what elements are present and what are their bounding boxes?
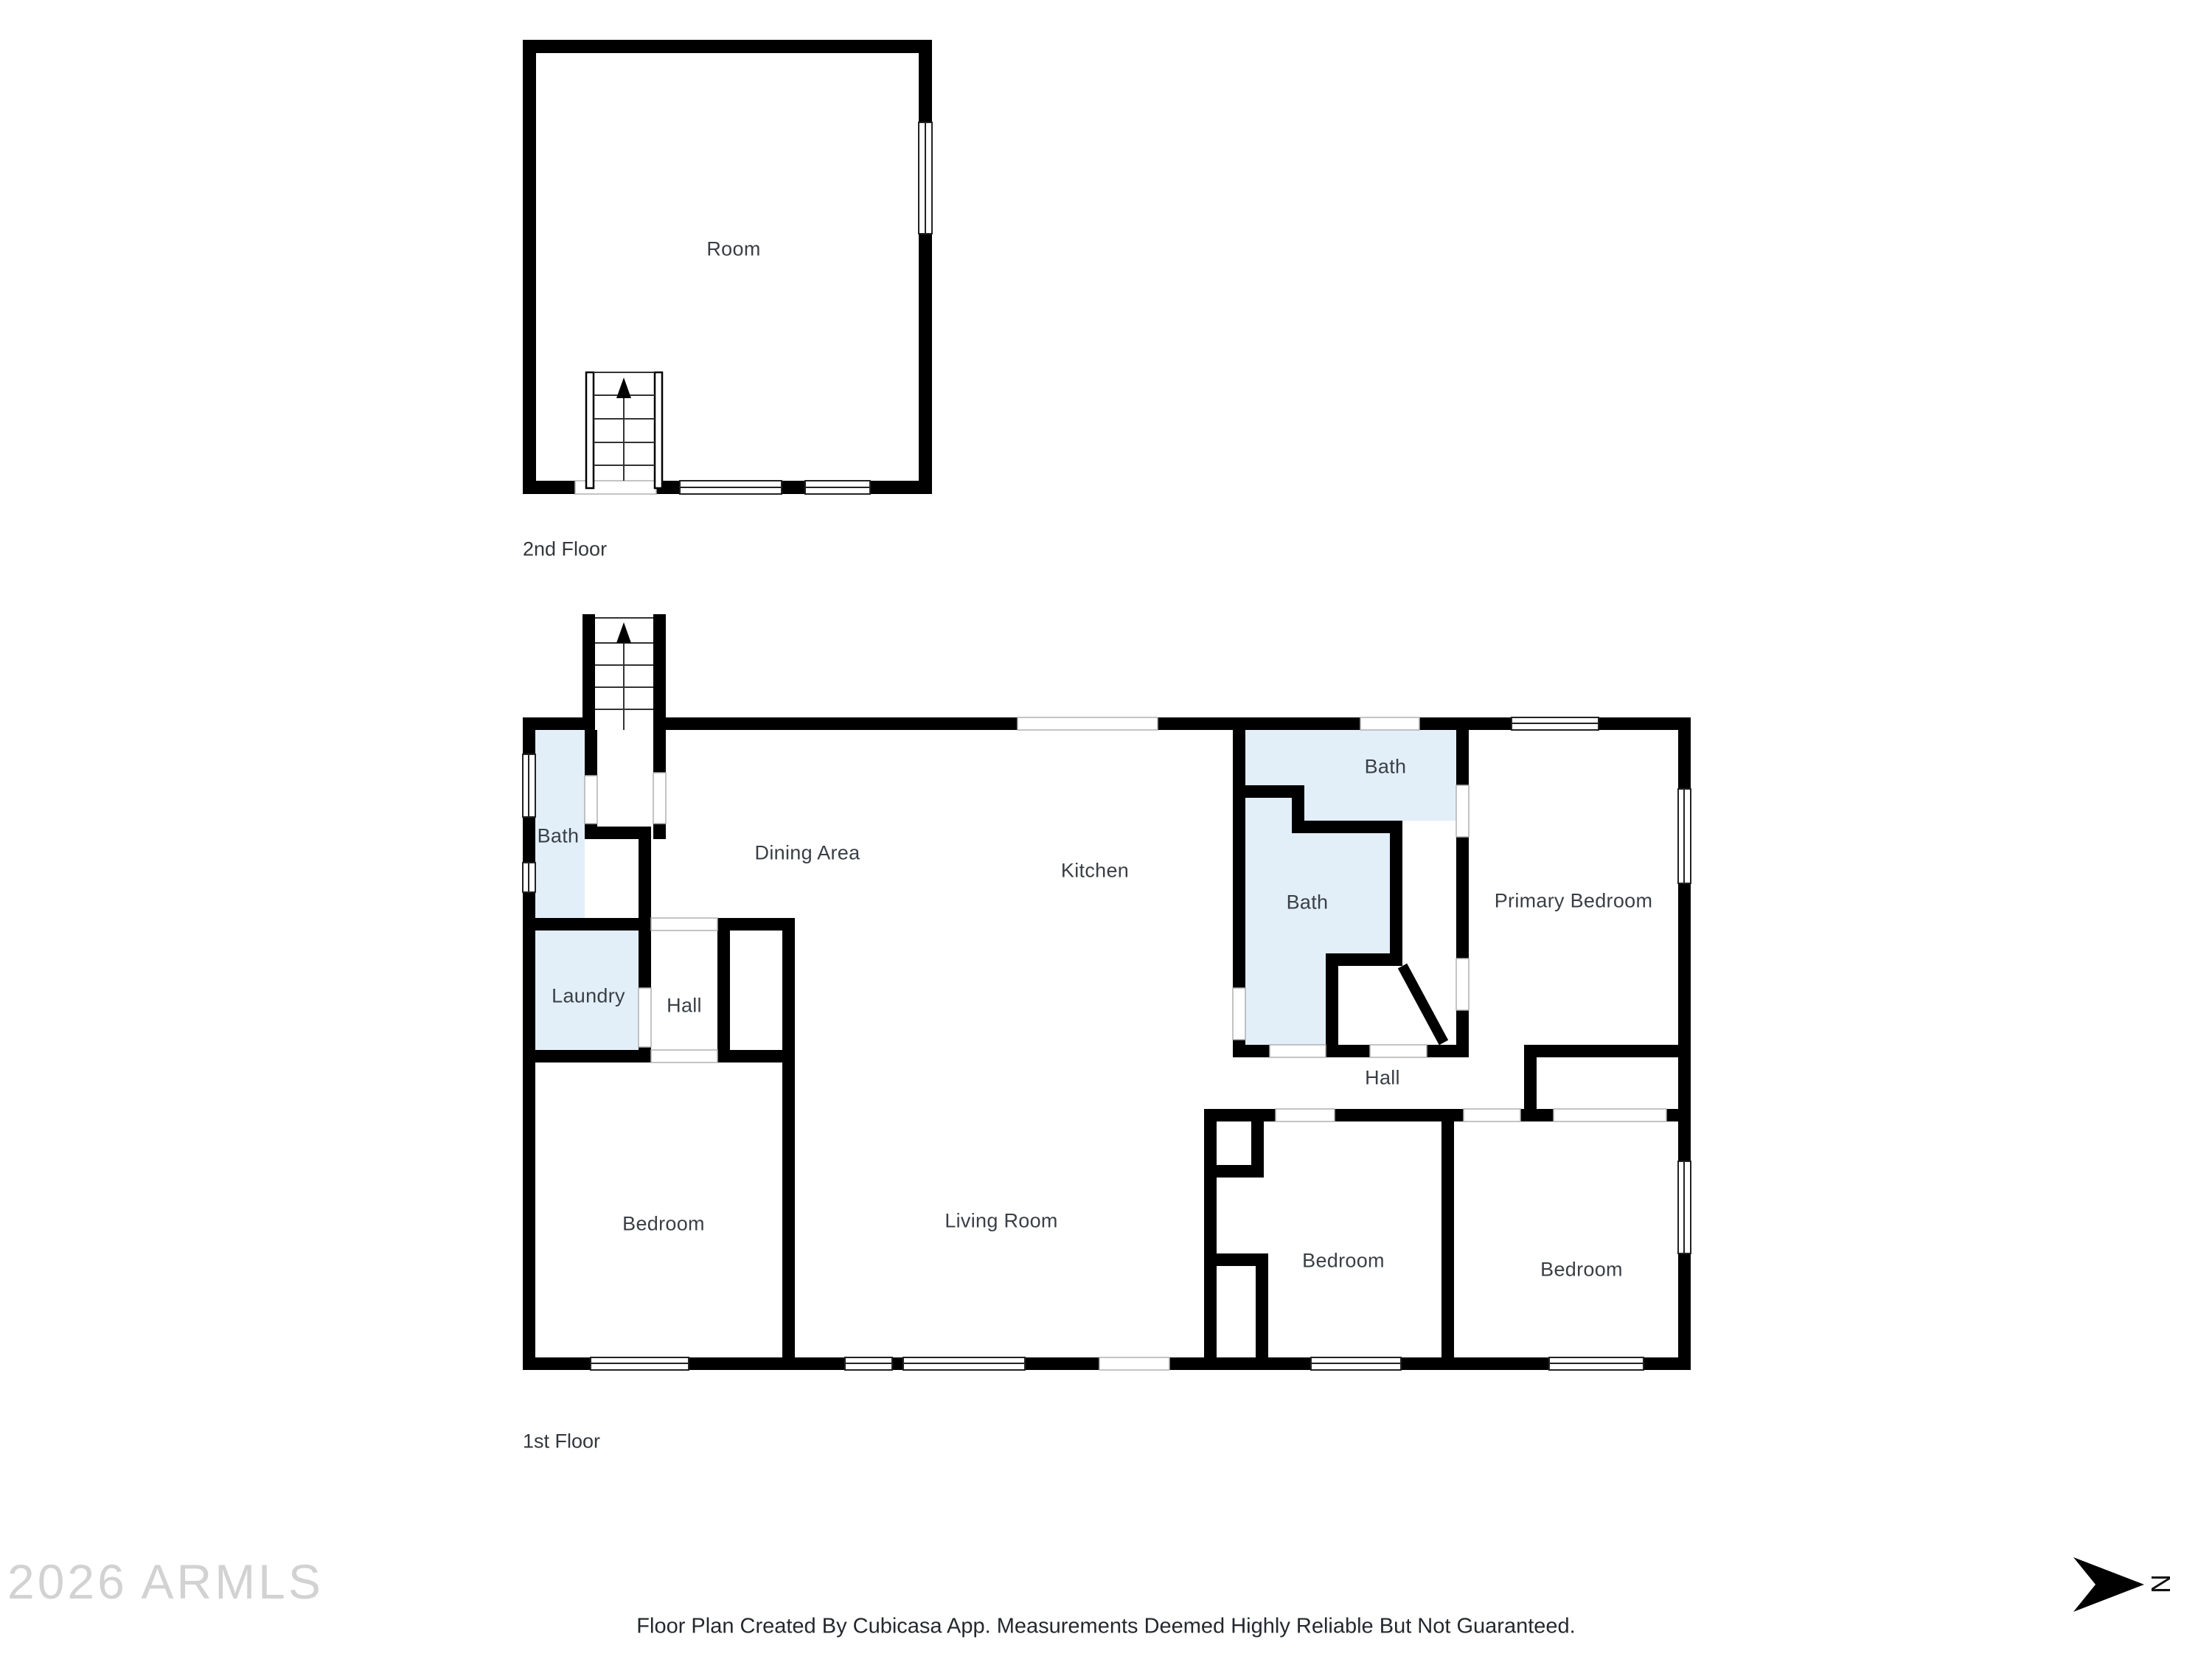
north-arrow-icon — [2073, 1557, 2144, 1612]
window-icon — [1311, 1357, 1401, 1370]
room-label-kitchen: Kitchen — [1061, 860, 1129, 883]
window-icon — [903, 1357, 1025, 1370]
window-icons-1f — [523, 717, 1691, 1370]
window-icon — [919, 122, 932, 234]
window-icon — [523, 863, 535, 892]
floor-plan-canvas — [0, 0, 2212, 1659]
door-opening — [1464, 1109, 1520, 1121]
floor-plan-page: Room 2nd Floor Bath Dining Area Kitchen … — [0, 0, 2212, 1659]
window-icon — [1678, 789, 1691, 883]
window-icons-2f — [680, 122, 932, 494]
first-floor-interior-walls — [535, 730, 1678, 1357]
room-label-dining-area: Dining Area — [755, 842, 860, 865]
door-opening — [639, 988, 651, 1047]
window-icon — [523, 754, 535, 817]
door-opening — [1370, 1045, 1427, 1057]
room-label-bath-topleft: Bath — [538, 825, 580, 848]
room-label-bedroom-right: Bedroom — [1540, 1259, 1623, 1281]
door-opening — [651, 918, 717, 931]
room-label-bath-lower: Bath — [1287, 891, 1329, 914]
stairs-up-icon — [586, 372, 662, 488]
second-floor-walls — [523, 40, 932, 494]
window-icon — [1512, 717, 1599, 730]
north-label: N — [2145, 1574, 2176, 1593]
window-icon — [845, 1357, 892, 1370]
room-label-room: Room — [706, 238, 760, 261]
door-opening — [1554, 1109, 1666, 1121]
door-opening — [1276, 1109, 1335, 1121]
stairs-up-icon — [595, 618, 653, 730]
watermark-text: 2026 ARMLS — [7, 1554, 324, 1610]
bath-topleft-fill — [535, 730, 585, 918]
room-label-bath-top: Bath — [1365, 756, 1407, 779]
floor-caption-1st: 1st Floor — [523, 1430, 600, 1453]
bath-lower-fill — [1245, 798, 1390, 1045]
door-opening — [1233, 988, 1245, 1040]
door-opening — [1270, 1045, 1326, 1057]
door-opening — [585, 776, 597, 824]
room-label-bedroom-left: Bedroom — [622, 1213, 705, 1236]
room-label-bedroom-middle: Bedroom — [1302, 1250, 1385, 1273]
door-opening — [653, 773, 666, 824]
door-opening — [1099, 1357, 1169, 1370]
second-floor-plan — [523, 40, 932, 494]
room-label-hall-small: Hall — [667, 995, 702, 1018]
door-openings — [585, 717, 1666, 1370]
disclaimer-text: Floor Plan Created By Cubicasa App. Meas… — [0, 1615, 2212, 1639]
floor-caption-2nd: 2nd Floor — [523, 538, 607, 561]
window-icon — [680, 481, 782, 494]
door-opening — [1456, 785, 1469, 837]
door-opening — [651, 1050, 717, 1062]
room-label-primary-bedroom: Primary Bedroom — [1495, 890, 1653, 913]
window-icon — [591, 1357, 689, 1370]
room-label-laundry: Laundry — [552, 985, 625, 1008]
room-label-hall-right: Hall — [1365, 1067, 1400, 1090]
window-icon — [1549, 1357, 1644, 1370]
door-opening — [1018, 717, 1158, 730]
door-opening — [1360, 717, 1419, 730]
door-opening — [1456, 959, 1469, 1010]
room-label-living-room: Living Room — [945, 1210, 1057, 1233]
window-icon — [1678, 1161, 1691, 1253]
window-icon — [805, 481, 870, 494]
first-floor-plan — [523, 614, 1691, 1370]
door-swing-icon — [1402, 966, 1444, 1043]
